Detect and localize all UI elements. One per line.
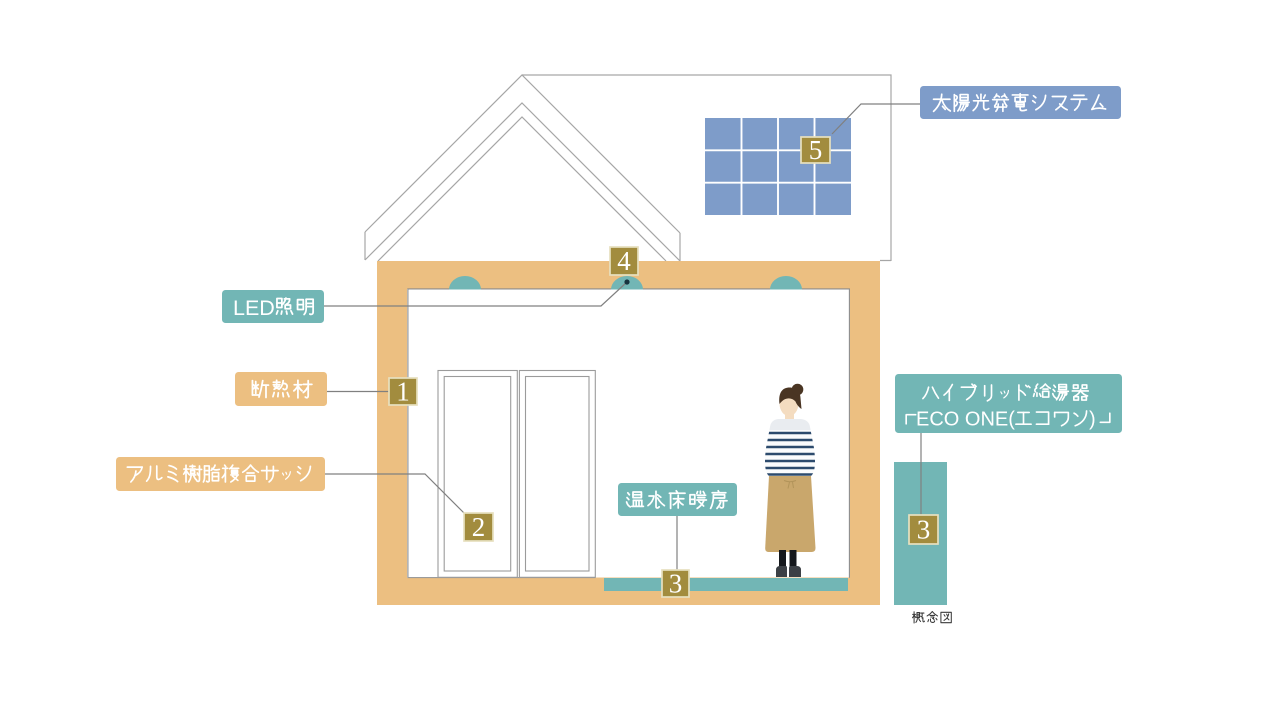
svg-text:ECO ONE(: ECO ONE(: [916, 409, 1015, 431]
svg-text:LED: LED: [233, 296, 275, 320]
svg-text:): ): [1089, 409, 1096, 431]
svg-text:4: 4: [617, 246, 631, 276]
svg-text:3: 3: [669, 569, 683, 599]
svg-text:2: 2: [472, 512, 486, 542]
svg-text:3: 3: [917, 515, 931, 545]
svg-text:1: 1: [396, 377, 410, 407]
svg-text:5: 5: [809, 135, 823, 165]
